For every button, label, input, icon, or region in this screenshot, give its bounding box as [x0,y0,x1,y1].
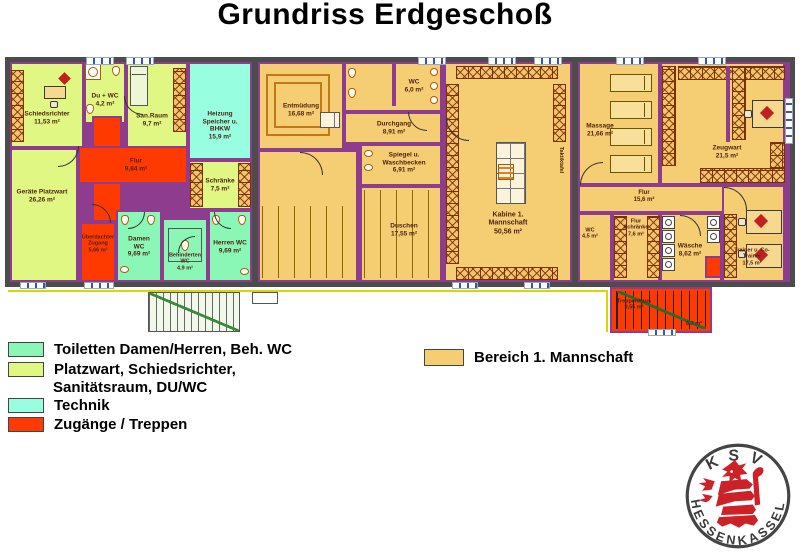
bench-fixture [732,66,746,140]
window-mark [418,57,446,65]
legend-item-platzwart-line2: Sanitätsraum, DU/WC [53,379,207,396]
legend-label: Toiletten Damen/Herren, Beh. WC [54,341,292,358]
stairred-fixture [616,291,706,329]
redbox-fixture [705,256,722,278]
bench-fixture [770,142,785,168]
table-fixture [610,101,652,119]
grid-fixture [320,112,340,128]
bench-fixture [614,216,627,278]
legend-label: Bereich 1. Mannschaft [474,349,633,366]
legend-swatch-platzwart [8,362,44,377]
bench-fixture [647,216,660,278]
bench-fixture [662,66,676,166]
washer-fixture [662,216,675,229]
room-flur [78,146,188,184]
bench-fixture [456,267,558,280]
window-mark [84,282,114,289]
room-durchgang [344,112,442,144]
room-ueberdachter-zugang [80,222,116,282]
walld-fixture [252,62,258,282]
washer-fixture [707,230,720,243]
window-mark [524,282,550,289]
sink-fixture [430,68,438,76]
hline-fixture [606,292,608,332]
table-fixture [610,74,652,92]
extstair-fixture [148,292,240,332]
legend-item-technik: Technik [8,397,110,414]
window-mark [534,57,562,65]
legend-item-platzwart: Platzwart, Schiedsrichter, [8,361,236,378]
hatch-fixture [498,164,514,180]
bench-fixture [553,84,566,142]
desk-fixture [44,86,66,99]
legend-label: Sanitätsraum, DU/WC [53,379,207,396]
room-flur-rechts [578,185,724,213]
legend-swatch-toilets [8,342,44,357]
chair-fixture [738,250,746,258]
bench-fixture [446,84,459,264]
bench-fixture [190,163,203,207]
bench-fixture [11,70,24,142]
stalls-fixture [262,206,354,278]
chair-fixture [738,218,746,226]
legend-item-toilets: Toiletten Damen/Herren, Beh. WC [8,341,292,358]
legend-label: Technik [54,397,110,414]
legend-swatch-team [424,349,464,366]
shower-fixture [85,64,101,80]
legend-label: Zugänge / Treppen [54,416,187,433]
wallp-fixture [392,62,396,106]
legend-swatch-technik [8,398,44,413]
ksv-hessen-kassel-logo: KSV HESSEN KASSEL [683,440,793,552]
stalls-fixture [364,190,438,278]
stoop-fixture [252,292,278,304]
sink-fixture [364,150,373,157]
walld-fixture [572,62,578,282]
sink-fixture [430,96,438,104]
bench-fixture [724,214,737,278]
window-mark [20,282,46,289]
bench-fixture [700,168,785,183]
bench-fixture [456,66,558,79]
legend-item-zugaenge: Zugänge / Treppen [8,416,187,433]
washer-fixture [707,216,720,229]
window-mark [86,57,114,65]
table-fixture [610,128,652,146]
chair-fixture [744,110,752,118]
window-mark [616,57,644,65]
washer-fixture [662,230,675,243]
legend-right: Bereich 1. Mannschaft [424,349,633,366]
legend-label: Platzwart, Schiedsrichter, [54,361,236,378]
table-fixture [610,155,652,173]
wallp-fixture [726,66,730,142]
sink-fixture [120,266,129,273]
window-mark [126,57,154,65]
sink-fixture [240,268,249,275]
legend-swatch-zugaenge [8,417,44,432]
sink-fixture [430,82,438,90]
window-mark [698,57,726,65]
room-technik-heizung [188,62,252,160]
window-mark [488,57,516,65]
room-wc-rechts [578,213,612,282]
floor-plan: Schiedsrichter11,53 m²Du + WC4,2 m²San.R… [0,0,800,559]
chair-fixture [50,101,58,108]
window-mark [785,98,793,144]
bench-fixture [238,163,251,207]
window-mark [452,282,478,289]
washer-fixture [662,258,675,271]
hline-fixture [8,290,608,292]
bench-fixture [173,68,186,132]
sink-fixture [364,164,373,171]
room-geraete-platzwart [10,148,78,282]
washer-fixture [662,244,675,257]
window-mark [648,329,676,336]
